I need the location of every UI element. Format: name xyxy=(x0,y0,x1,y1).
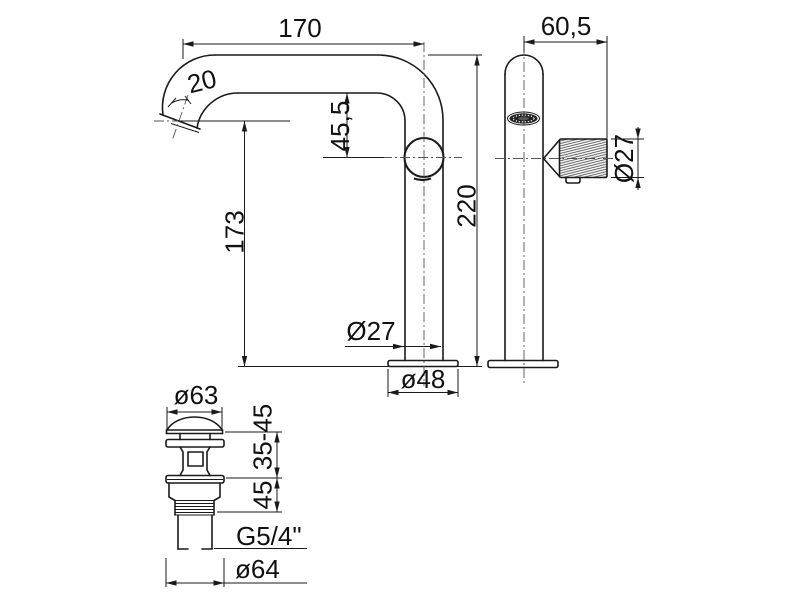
dim-cap-diameter: ø63 xyxy=(174,380,219,410)
dim-handle-diameter: Ø27 xyxy=(609,134,639,183)
dim-outlet-height: 173 xyxy=(220,210,250,253)
dim-base-diameter: ø48 xyxy=(401,364,446,394)
drawing-background xyxy=(0,0,800,600)
dim-column-diameter: Ø27 xyxy=(346,316,395,346)
dim-thread-length: 45 xyxy=(248,481,278,510)
dim-outlet-diameter: ø64 xyxy=(235,554,280,584)
dim-handle-offset: 60,5 xyxy=(541,11,592,41)
dim-total-height: 220 xyxy=(452,184,482,227)
technical-drawing: 170 20 45,5 173 220 Ø27 ø48 xyxy=(0,0,800,600)
brand-badge xyxy=(508,112,540,125)
dim-thread-size: G5/4" xyxy=(236,521,302,551)
dim-clamp-range: 35-45 xyxy=(248,404,278,471)
dim-spout-reach: 170 xyxy=(278,13,321,43)
dim-spout-to-handle: 45,5 xyxy=(325,101,355,152)
